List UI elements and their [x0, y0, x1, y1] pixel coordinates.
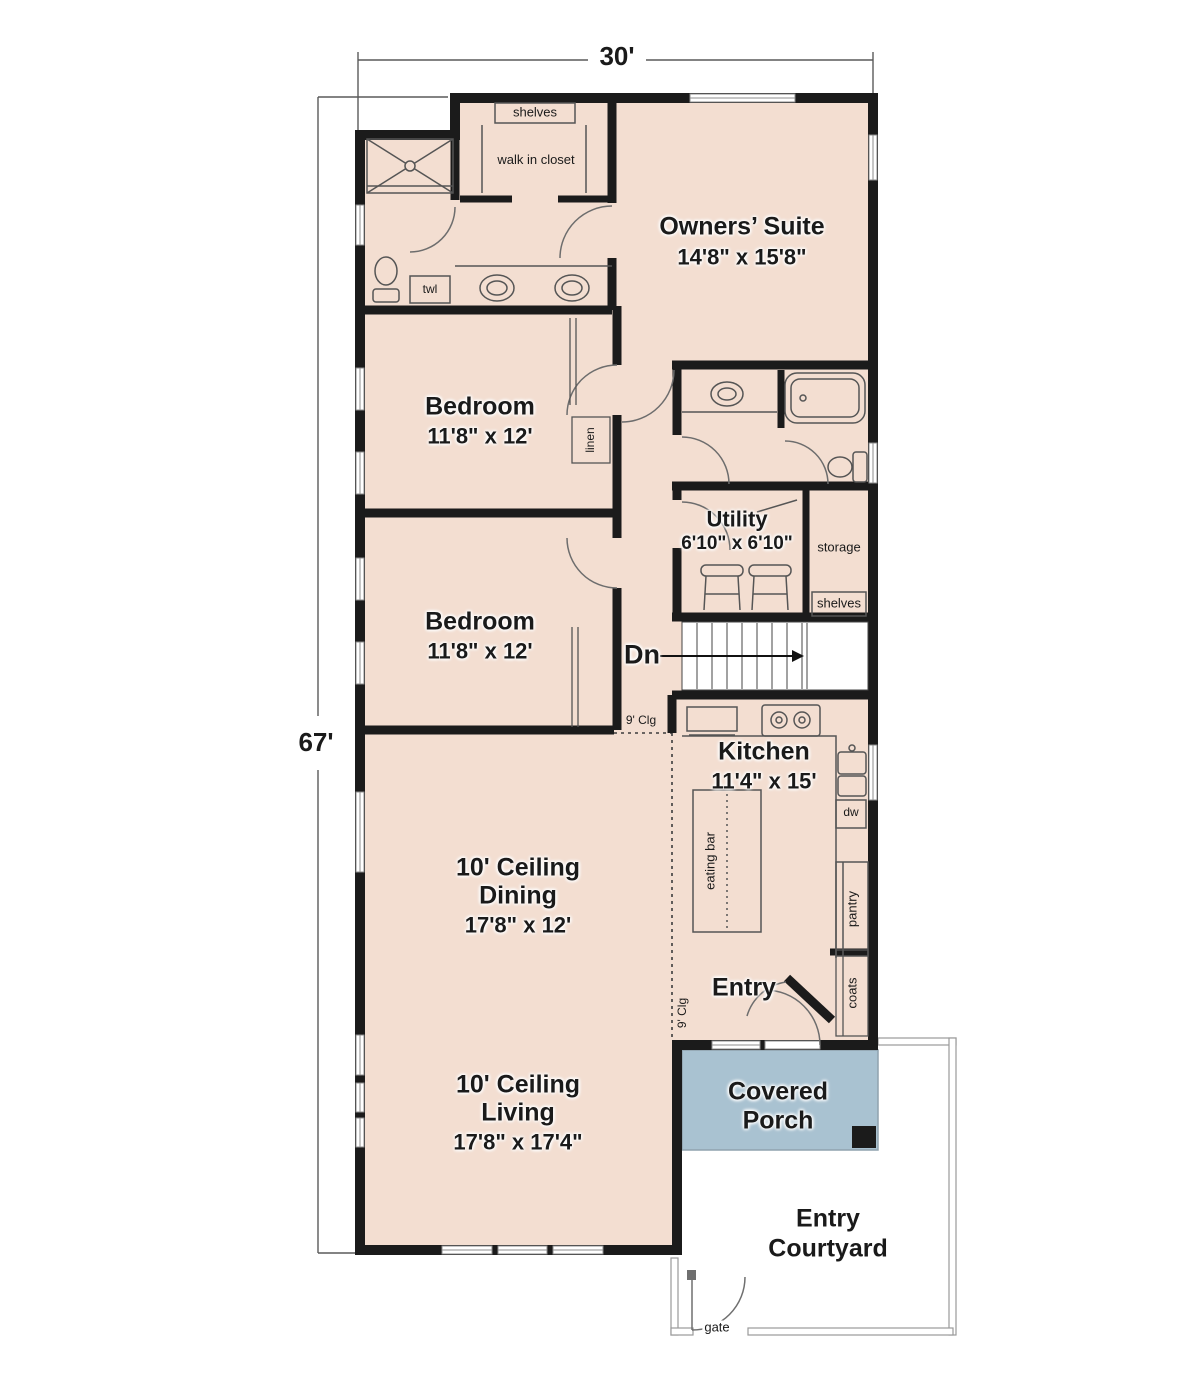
- bedroom-lower-size: 11'8" x 12': [427, 638, 532, 663]
- entry-name: Entry: [712, 974, 776, 1003]
- utility-shelves-label: shelves: [817, 597, 861, 612]
- linen-label: linen: [584, 427, 598, 452]
- dimension-height-label: 67': [298, 728, 333, 758]
- kitchen-name: Kitchen: [718, 738, 810, 767]
- dimension-width-label: 30': [599, 42, 634, 72]
- bedroom-upper-size: 11'8" x 12': [427, 423, 532, 448]
- closet-shelves-label: shelves: [513, 106, 557, 121]
- ceiling-entry-label: 9' Clg: [676, 998, 690, 1028]
- covered-porch-line1: Covered: [728, 1078, 828, 1107]
- dishwasher-label: dw: [843, 806, 858, 820]
- owners-suite-size: 14'8" x 15'8": [677, 244, 806, 269]
- utility-size: 6'10" x 6'10": [681, 533, 793, 555]
- ceiling-kitchen-label: 9' Clg: [626, 714, 656, 728]
- entry-courtyard-line1: Entry: [796, 1205, 860, 1234]
- towel-label: twl: [423, 283, 438, 297]
- dining-ceiling: 10' Ceiling: [456, 854, 580, 883]
- covered-porch-line2: Porch: [743, 1107, 814, 1136]
- entry-courtyard-line2: Courtyard: [768, 1235, 887, 1264]
- walk-in-closet-label: walk in closet: [490, 152, 582, 168]
- bedroom-upper-name: Bedroom: [425, 393, 535, 422]
- floor-plan-drawing: [0, 0, 1200, 1376]
- floor-plan-page: 30' 67' Owners’ Suite 14'8" x 15'8" Bedr…: [0, 0, 1200, 1376]
- dining-size: 17'8" x 12': [465, 912, 572, 937]
- dining-name: Dining: [479, 882, 557, 911]
- pantry-label: pantry: [846, 891, 861, 927]
- bedroom-lower-name: Bedroom: [425, 608, 535, 637]
- gate-label: gate: [702, 1321, 731, 1336]
- living-name: Living: [481, 1099, 555, 1128]
- storage-label: storage: [817, 541, 860, 556]
- eating-bar-label: eating bar: [704, 832, 719, 890]
- stairs: [660, 622, 868, 690]
- living-size: 17'8" x 17'4": [453, 1129, 582, 1154]
- stairs-down-label: Dn: [624, 639, 660, 670]
- kitchen-size: 11'4" x 15': [711, 768, 816, 793]
- porch-post: [852, 1126, 876, 1148]
- utility-name: Utility: [706, 506, 767, 531]
- owners-suite-name: Owners’ Suite: [659, 213, 824, 242]
- living-ceiling: 10' Ceiling: [456, 1071, 580, 1100]
- coats-label: coats: [846, 977, 861, 1008]
